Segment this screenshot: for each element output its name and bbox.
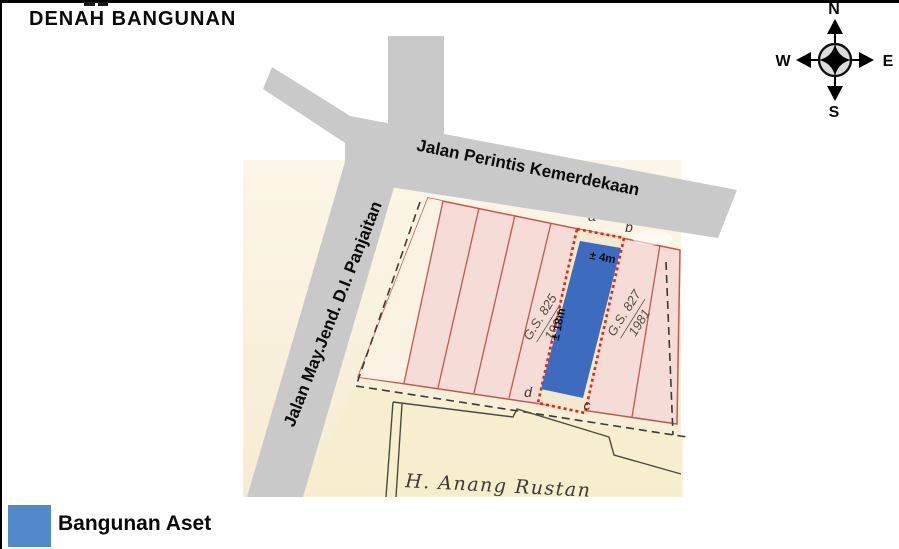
legend-label: Bangunan Aset (58, 512, 211, 536)
compass-rose: N S W E (775, 1, 893, 121)
svg-text:d: d (524, 384, 533, 400)
slide: DENAH BANGUNAN (0, 0, 899, 549)
west-arrow-icon (796, 52, 811, 68)
compass-label-north: N (828, 1, 840, 18)
north-arrow-icon (827, 19, 843, 34)
east-arrow-icon (859, 52, 874, 68)
site-plan-canvas: H. Anang Rustan G.S. 825 1987 G.S. 827 1… (0, 0, 899, 549)
legend-color-swatch (8, 505, 51, 547)
compass-label-east: E (883, 53, 894, 70)
compass-label-west: W (775, 53, 791, 70)
compass-label-south: S (829, 104, 840, 121)
svg-text:c: c (584, 397, 591, 413)
south-arrow-icon (827, 86, 843, 101)
